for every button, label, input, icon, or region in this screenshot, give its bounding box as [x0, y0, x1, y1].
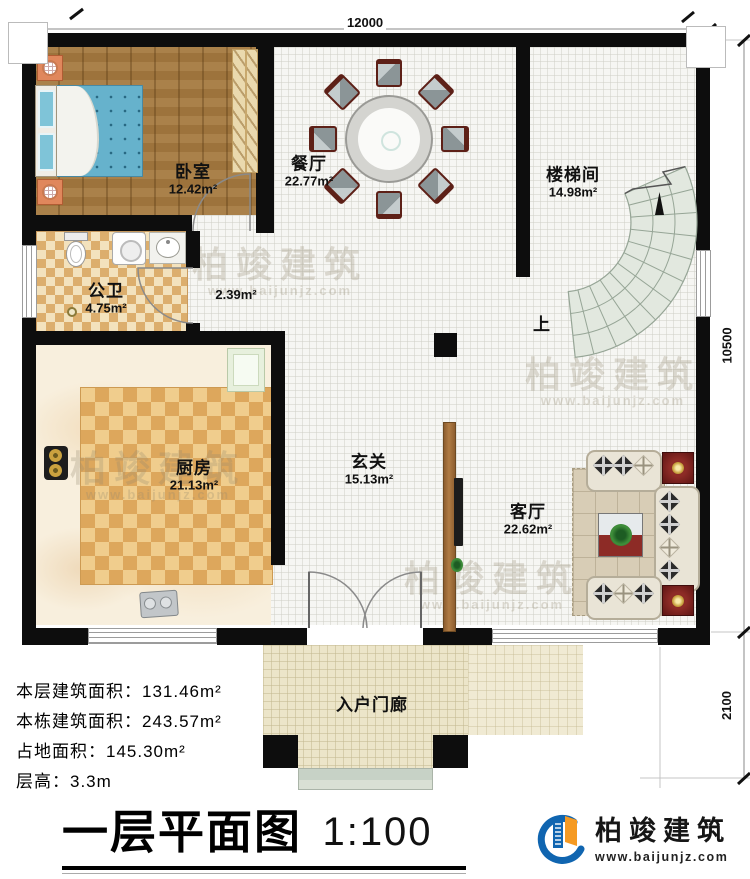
brand-logo: 柏竣建筑 www.baijunjz.com	[533, 808, 731, 864]
pillow	[38, 133, 55, 171]
room-label-kitchen: 厨房21.13m²	[170, 460, 218, 493]
dining-chair	[376, 59, 402, 87]
plant-icon	[451, 558, 463, 572]
wall-kitchen-top	[22, 331, 285, 345]
gas-stove-icon	[44, 446, 68, 480]
info-building-area: 本栋建筑面积：243.57m²	[16, 707, 222, 732]
washing-machine-icon	[112, 232, 146, 265]
wardrobe	[232, 49, 258, 173]
room-label-foyer: 玄关15.13m²	[345, 454, 393, 487]
stairs-up-label: 上	[533, 310, 550, 335]
wall-left-lower	[22, 318, 36, 645]
entry-steps	[298, 768, 433, 790]
wall-bedroom-bottom	[22, 215, 192, 231]
wall-bottom-seg2	[217, 628, 307, 645]
corner-box-top-right	[686, 26, 726, 68]
window-stairwell-right	[696, 250, 711, 317]
kitchen-sink-icon	[139, 590, 179, 619]
wall-top	[22, 33, 710, 47]
side-table	[662, 452, 694, 484]
plan-scale: 1:100	[322, 810, 432, 855]
dining-chair	[441, 126, 469, 152]
wall-right-upper	[696, 47, 710, 250]
room-label-dining: 餐厅22.77m²	[285, 156, 333, 189]
wall-kitchen-right	[271, 345, 285, 565]
room-label-living: 客厅22.62m²	[504, 504, 552, 537]
side-table	[662, 585, 694, 616]
lamp-icon	[42, 184, 58, 200]
burner	[49, 464, 62, 477]
wall-right-lower	[696, 317, 710, 645]
room-label-porch: 入户门廊	[336, 697, 408, 716]
bathroom-basin	[156, 237, 180, 258]
column-center	[434, 333, 457, 357]
info-floor-area: 本层建筑面积：131.46m²	[16, 677, 222, 702]
dimension-right-lower: 2100	[719, 688, 734, 723]
brand-url: www.baijunjz.com	[595, 850, 731, 864]
porch-column-right	[433, 735, 468, 768]
porch-side-paving	[468, 645, 583, 735]
room-label-stairwell: 楼梯间14.98m²	[546, 167, 600, 200]
coffee-table-plant-icon	[610, 524, 632, 546]
brand-logo-icon	[533, 808, 587, 864]
wall-bathroom-right-upper	[186, 231, 200, 268]
wall-bottom-seg4	[658, 628, 710, 645]
info-storey-height: 层高：3.3m	[16, 767, 112, 792]
corner-box-top-left	[8, 22, 48, 64]
wall-bottom-seg3	[423, 628, 492, 645]
wall-dining-stairwell	[516, 47, 530, 277]
burner	[49, 449, 62, 462]
wall-bathroom-right-lower	[186, 323, 200, 331]
toilet-icon	[64, 232, 88, 241]
nightstand-bottom	[37, 179, 63, 205]
dining-table-center	[381, 131, 401, 151]
window-bathroom-left	[22, 245, 37, 318]
wall-bedroom-right	[256, 47, 274, 233]
dining-chair	[376, 191, 402, 219]
kitchen-counter	[227, 348, 265, 392]
room-label-bedroom: 卧室12.42m²	[169, 164, 217, 197]
plan-title-block: 一层平面图 1:100	[62, 796, 466, 870]
plan-title: 一层平面图	[62, 796, 302, 862]
sink-bowl	[144, 597, 157, 610]
wall-bottom-seg1	[22, 628, 88, 645]
tv-icon	[454, 478, 463, 546]
toilet-bowl	[66, 241, 86, 267]
floor-plan-canvas: 柏竣建筑www.baijunjz.com 柏竣建筑www.baijunjz.co…	[0, 0, 750, 879]
window-kitchen-bottom	[88, 628, 217, 644]
porch-column-left	[263, 735, 298, 768]
dining-chair	[309, 126, 337, 152]
dimension-top: 12000	[344, 15, 386, 30]
window-living-bottom	[492, 629, 658, 643]
dimension-right-upper: 10500	[720, 324, 735, 366]
sink-bowl	[160, 596, 173, 609]
info-footprint-area: 占地面积：145.30m²	[16, 737, 186, 762]
pillow	[38, 90, 55, 128]
brand-name: 柏竣建筑	[595, 809, 731, 848]
room-label-bathroom: 公卫4.75m²	[85, 283, 126, 316]
room-label-corridor: 2.39m²	[215, 288, 256, 302]
floor-drain-icon	[67, 307, 77, 317]
